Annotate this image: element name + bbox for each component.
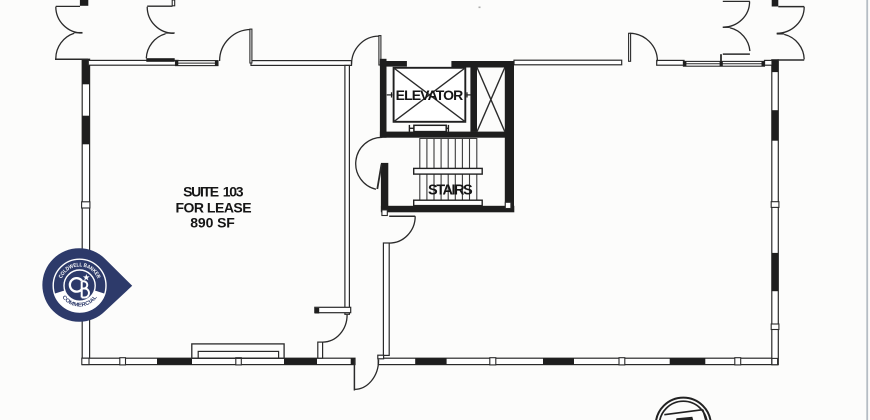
svg-text:STAIRS: STAIRS [428,183,473,199]
svg-text:FOR LEASE: FOR LEASE [175,200,251,216]
svg-text:890 SF: 890 SF [190,215,235,231]
svg-text:SUITE 103: SUITE 103 [183,184,244,200]
svg-text:ELEVATOR: ELEVATOR [396,87,463,103]
